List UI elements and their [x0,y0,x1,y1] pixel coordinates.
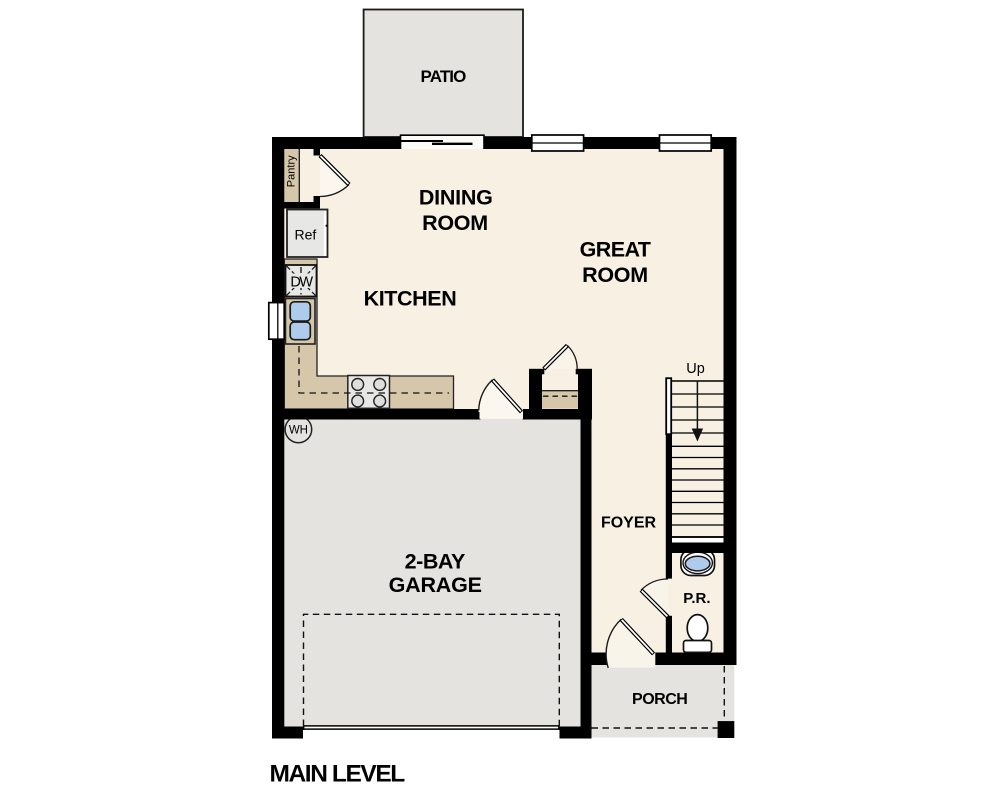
svg-text:GARAGE: GARAGE [389,573,482,597]
svg-text:2-BAY: 2-BAY [405,550,465,574]
svg-text:FOYER: FOYER [601,515,657,532]
svg-text:Ref: Ref [295,227,317,243]
svg-text:PATIO: PATIO [421,67,467,86]
svg-text:Up: Up [686,361,705,377]
svg-text:WH: WH [289,425,308,437]
svg-text:P.R.: P.R. [683,590,710,607]
svg-text:DINING: DINING [419,186,493,210]
svg-text:KITCHEN: KITCHEN [364,286,457,310]
svg-text:ROOM: ROOM [422,211,488,235]
svg-text:DW: DW [290,275,313,291]
svg-text:MAIN LEVEL: MAIN LEVEL [270,761,406,788]
svg-text:ROOM: ROOM [582,263,648,287]
svg-text:GREAT: GREAT [580,238,651,262]
svg-text:PORCH: PORCH [632,691,687,708]
svg-text:Pantry: Pantry [286,155,298,187]
